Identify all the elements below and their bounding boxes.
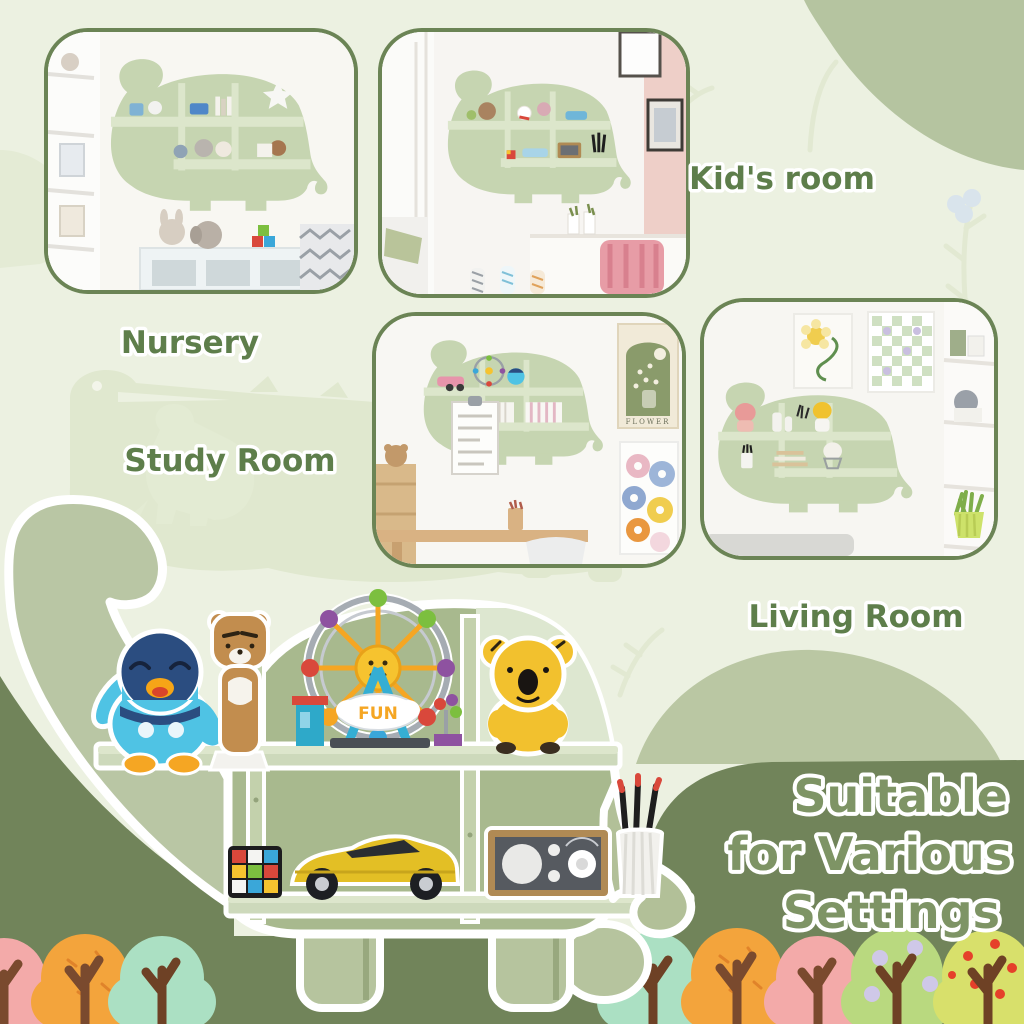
flower-doodle-print xyxy=(794,314,852,388)
poster-canvas: FUN xyxy=(0,0,1024,1024)
white-shelving-unit xyxy=(944,302,994,556)
wooden-radio xyxy=(486,828,610,898)
rubiks-cube xyxy=(228,846,282,898)
ticket-booth xyxy=(292,696,328,746)
fun-sign: FUN xyxy=(336,694,420,730)
photo-nursery xyxy=(44,28,358,294)
sofa-back xyxy=(704,534,854,556)
clipboard xyxy=(452,396,498,474)
wall-shelving-left xyxy=(48,32,100,290)
fun-sign-text: FUN xyxy=(358,704,398,724)
photo-kids-room xyxy=(378,28,690,298)
door-frame xyxy=(382,32,434,294)
flowers-art-print xyxy=(620,442,678,554)
pink-chair xyxy=(600,240,664,294)
pencil-holder xyxy=(618,776,662,896)
flower-poster-text: FLOWER xyxy=(626,418,671,426)
flower-poster: FLOWER xyxy=(618,324,678,428)
checker-print xyxy=(868,312,934,392)
photo-living-room xyxy=(700,298,998,560)
zigzag-chair xyxy=(300,224,354,290)
photo-study-room: FLOWER xyxy=(372,312,686,568)
